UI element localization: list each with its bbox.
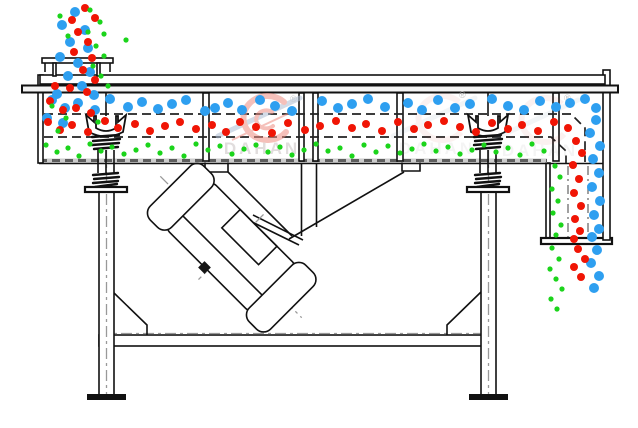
fine-green-particle [361, 142, 366, 147]
fine-green-particle [481, 142, 486, 147]
fine-green-particle [313, 141, 318, 146]
medium-red-particle [88, 54, 96, 62]
fine-green-particle [556, 256, 561, 261]
fine-green-particle [123, 37, 128, 42]
medium-red-particle [440, 117, 448, 125]
coarse-blue-particle [333, 103, 343, 113]
medium-red-particle [332, 117, 340, 125]
coarse-blue-particle [595, 141, 605, 151]
medium-red-particle [424, 121, 432, 129]
fine-green-particle [549, 186, 554, 191]
fine-green-particle [98, 73, 103, 78]
fine-green-particle [549, 245, 554, 250]
medium-red-particle [51, 82, 59, 90]
medium-red-particle [176, 118, 184, 126]
fine-green-particle [559, 286, 564, 291]
medium-red-particle [581, 255, 589, 263]
medium-red-particle [66, 84, 74, 92]
coarse-blue-particle [167, 99, 177, 109]
medium-red-particle [456, 123, 464, 131]
medium-red-particle [574, 245, 582, 253]
box-top-band [40, 75, 605, 84]
fine-green-particle [553, 276, 558, 281]
coarse-blue-particle [123, 102, 133, 112]
medium-red-particle [72, 104, 80, 112]
bracket-arm-right [289, 172, 404, 239]
medium-red-particle [83, 88, 91, 96]
fine-green-particle [101, 53, 106, 58]
fine-green-particle [547, 266, 552, 271]
registered-mark: ® [459, 90, 466, 100]
fine-green-particle [95, 119, 100, 124]
vibrating-screen-diagram: DAHAN ® DAHAN DAHAN ® ® [0, 0, 638, 428]
coarse-blue-particle [587, 182, 597, 192]
coarse-blue-particle [585, 128, 595, 138]
coarse-blue-particle [347, 99, 357, 109]
coarse-blue-particle [287, 106, 297, 116]
fine-green-particle [265, 149, 270, 154]
coarse-blue-particle [70, 7, 80, 17]
fine-green-particle [98, 148, 103, 153]
coarse-blue-particle [433, 95, 443, 105]
box-right-wall [603, 70, 610, 240]
fine-green-particle [517, 152, 522, 157]
medium-red-particle [252, 123, 260, 131]
coarse-blue-particle [105, 94, 115, 104]
fine-green-particle [457, 151, 462, 156]
fine-green-particle [277, 144, 282, 149]
medium-red-particle [578, 149, 586, 157]
fine-green-particle [217, 143, 222, 148]
medium-red-particle [74, 28, 82, 36]
medium-red-particle [192, 125, 200, 133]
fine-green-particle [397, 150, 402, 155]
coarse-blue-particle [551, 102, 561, 112]
fine-green-particle [552, 163, 557, 168]
fine-green-particle [49, 103, 54, 108]
fine-green-particle [97, 19, 102, 24]
fine-green-particle [421, 141, 426, 146]
medium-red-particle [534, 127, 542, 135]
coarse-blue-particle [535, 96, 545, 106]
fine-green-particle [550, 210, 555, 215]
fine-green-particle [493, 149, 498, 154]
coarse-blue-particle [565, 98, 575, 108]
spring-base-plate [85, 187, 127, 192]
coarse-blue-particle [270, 101, 280, 111]
fine-green-particle [555, 198, 560, 203]
base-beam [99, 335, 495, 346]
fine-green-particle [101, 31, 106, 36]
medium-red-particle [576, 227, 584, 235]
medium-red-particle [569, 161, 577, 169]
fine-green-particle [548, 296, 553, 301]
medium-red-particle [208, 121, 216, 129]
medium-red-particle [84, 38, 92, 46]
coarse-blue-particle [403, 98, 413, 108]
medium-red-particle [571, 215, 579, 223]
fine-green-particle [76, 153, 81, 158]
medium-red-particle [577, 273, 585, 281]
coarse-blue-particle [223, 98, 233, 108]
fine-green-particle [325, 148, 330, 153]
fine-green-particle [105, 83, 110, 88]
coarse-blue-particle [594, 271, 604, 281]
medium-red-particle [114, 124, 122, 132]
coarse-blue-particle [417, 105, 427, 115]
coarse-blue-particle [587, 232, 597, 242]
fine-green-particle [193, 141, 198, 146]
fine-green-particle [65, 33, 70, 38]
medium-red-particle [84, 128, 92, 136]
fine-green-particle [57, 13, 62, 18]
fine-green-particle [121, 151, 126, 156]
fine-green-particle [205, 147, 210, 152]
fine-green-particle [93, 43, 98, 48]
fine-green-particle [85, 29, 90, 34]
coarse-blue-particle [591, 115, 601, 125]
foot-pad-right [469, 394, 508, 400]
coarse-blue-particle [592, 245, 602, 255]
medium-red-particle [570, 263, 578, 271]
medium-red-particle [570, 189, 578, 197]
diagram-canvas: DAHAN ® DAHAN DAHAN ® ® [0, 0, 638, 428]
chute-left-wall [546, 163, 550, 239]
medium-red-particle [301, 126, 309, 134]
medium-red-particle [316, 122, 324, 130]
fine-green-particle [43, 142, 48, 147]
fine-green-particle [469, 147, 474, 152]
coarse-blue-particle [487, 94, 497, 104]
coarse-blue-particle [200, 106, 210, 116]
coarse-blue-particle [465, 99, 475, 109]
medium-red-particle [101, 117, 109, 125]
coarse-blue-particle [594, 224, 604, 234]
foot-pad-left [87, 394, 126, 400]
fine-green-particle [90, 63, 95, 68]
medium-red-particle [70, 48, 78, 56]
fine-green-particle [169, 145, 174, 150]
fine-green-particle [373, 149, 378, 154]
coarse-blue-particle [589, 210, 599, 220]
fine-green-particle [558, 222, 563, 227]
coarse-blue-particle [380, 102, 390, 112]
fine-green-particle [253, 142, 258, 147]
coarse-blue-particle [595, 196, 605, 206]
watermark-brand-text: DAHAN [224, 139, 300, 158]
fine-green-particle [409, 146, 414, 151]
gusset-left [113, 292, 147, 335]
fine-green-particle [557, 174, 562, 179]
coarse-blue-particle [363, 94, 373, 104]
fine-green-particle [63, 115, 68, 120]
medium-red-particle [488, 119, 496, 127]
coarse-blue-particle [255, 95, 265, 105]
fine-green-particle [87, 7, 92, 12]
medium-red-particle [68, 121, 76, 129]
box-top-rail [22, 86, 618, 93]
registered-mark: ® [290, 94, 297, 104]
medium-red-particle [394, 118, 402, 126]
coarse-blue-particle [181, 95, 191, 105]
inlet-wall-left [53, 63, 56, 76]
coarse-blue-particle [65, 37, 75, 47]
fine-green-particle [505, 145, 510, 150]
coarse-blue-particle [137, 97, 147, 107]
coarse-blue-particle [210, 103, 220, 113]
fine-green-particle [145, 142, 150, 147]
fine-green-particle [433, 148, 438, 153]
gusset-right [447, 292, 481, 335]
coarse-blue-particle [580, 94, 590, 104]
fine-green-particle [241, 146, 246, 151]
coarse-blue-particle [519, 105, 529, 115]
medium-red-particle [378, 127, 386, 135]
fine-green-particle [157, 150, 162, 155]
medium-red-particle [146, 127, 154, 135]
coarse-blue-particle [153, 104, 163, 114]
fine-green-particle [337, 145, 342, 150]
medium-red-particle [91, 76, 99, 84]
fine-green-particle [133, 147, 138, 152]
fine-green-particle [301, 147, 306, 152]
fine-green-particle [229, 151, 234, 156]
fine-green-particle [65, 145, 70, 150]
fine-green-particle [529, 141, 534, 146]
medium-red-particle [222, 128, 230, 136]
coarse-blue-particle [588, 154, 598, 164]
medium-red-particle [472, 128, 480, 136]
medium-red-particle [575, 175, 583, 183]
medium-red-particle [362, 120, 370, 128]
fine-green-particle [181, 153, 186, 158]
medium-red-particle [161, 122, 169, 130]
coarse-blue-particle [63, 71, 73, 81]
medium-red-particle [504, 125, 512, 133]
medium-red-particle [518, 121, 526, 129]
medium-red-particle [348, 124, 356, 132]
coarse-blue-particle [594, 168, 604, 178]
fine-green-particle [289, 152, 294, 157]
coarse-blue-particle [55, 52, 65, 62]
fine-green-particle [554, 306, 559, 311]
medium-red-particle [59, 106, 67, 114]
coarse-blue-particle [503, 101, 513, 111]
medium-red-particle [570, 235, 578, 243]
medium-red-particle [572, 137, 580, 145]
fine-green-particle [553, 232, 558, 237]
coarse-blue-particle [450, 103, 460, 113]
fine-green-particle [87, 141, 92, 146]
fine-green-particle [109, 144, 114, 149]
medium-red-particle [44, 118, 52, 126]
medium-red-particle [87, 109, 95, 117]
watermark-brand-text: DAHAN [502, 141, 578, 160]
coarse-blue-particle [589, 283, 599, 293]
coarse-blue-particle [52, 89, 62, 99]
coarse-blue-particle [591, 103, 601, 113]
medium-red-particle [284, 119, 292, 127]
coarse-blue-particle [57, 20, 67, 30]
medium-red-particle [564, 124, 572, 132]
medium-red-particle [68, 16, 76, 24]
fine-green-particle [55, 128, 60, 133]
medium-red-particle [79, 66, 87, 74]
fine-green-particle [541, 148, 546, 153]
medium-red-particle [268, 129, 276, 137]
medium-red-particle [410, 125, 418, 133]
spring-base-plate [467, 187, 509, 192]
fine-green-particle [349, 153, 354, 158]
medium-red-particle [236, 118, 244, 126]
fine-green-particle [54, 149, 59, 154]
fine-green-particle [385, 143, 390, 148]
coarse-blue-particle [237, 105, 247, 115]
medium-red-particle [577, 202, 585, 210]
coarse-blue-particle [317, 96, 327, 106]
medium-red-particle [131, 120, 139, 128]
fine-green-particle [445, 144, 450, 149]
medium-red-particle [550, 118, 558, 126]
